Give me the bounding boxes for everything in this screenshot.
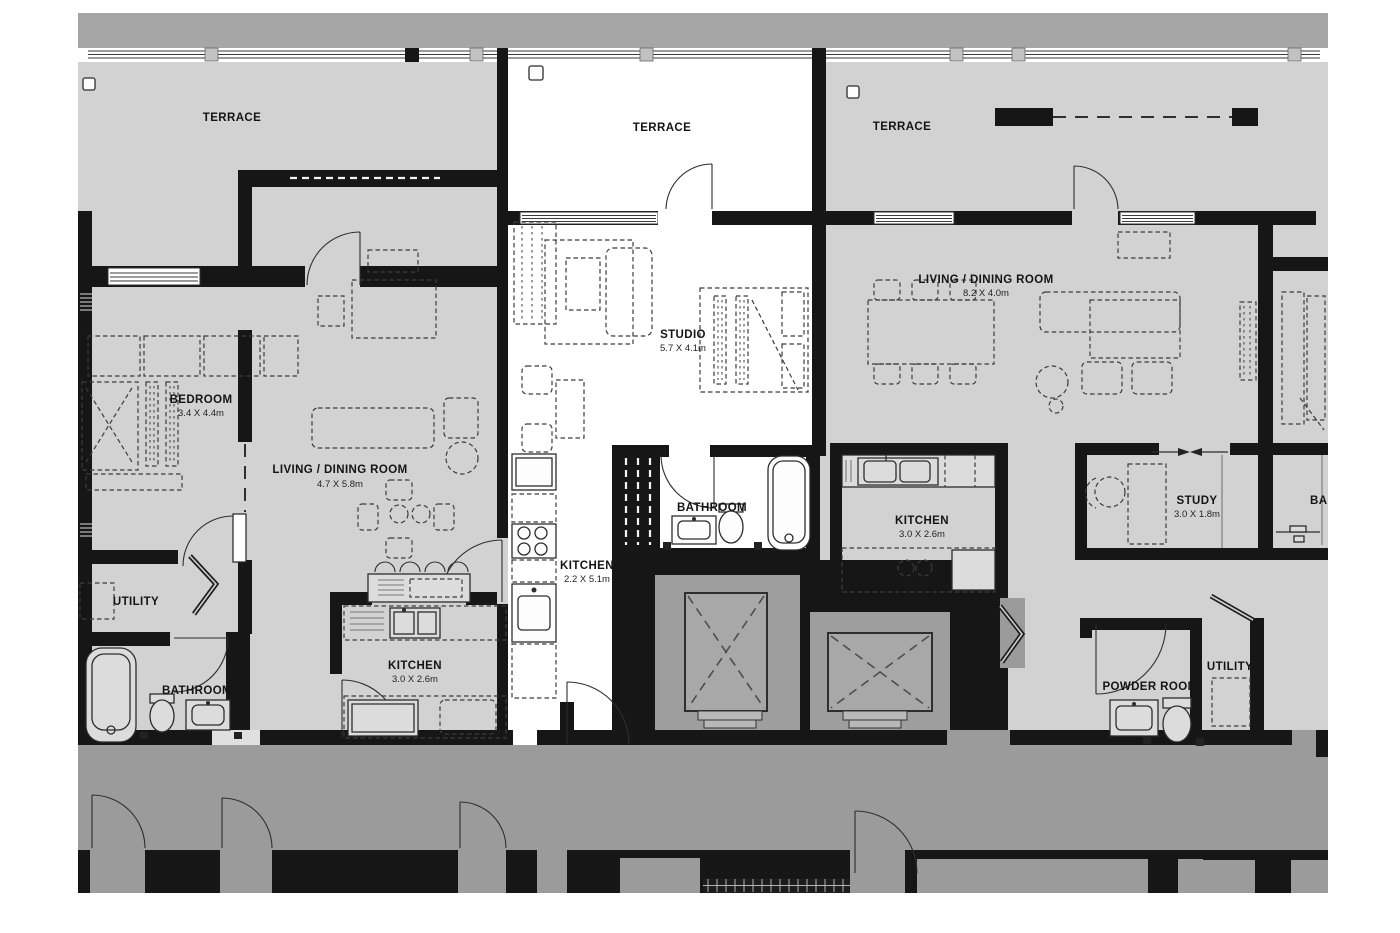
terrace-center-drain [529, 66, 543, 80]
dim-kitchen-left: 3.0 X 2.6m [392, 674, 438, 685]
window-right-terrace-1 [874, 212, 954, 224]
terrace-left-drain [83, 78, 95, 90]
stair-hatch [703, 878, 850, 893]
label-study: STUDY [1177, 495, 1218, 507]
floor-plan-page: TERRACE TERRACE TERRACE BEDROOM 3.4 X 4.… [0, 0, 1400, 933]
dim-living-right: 8.2 X 4.0m [963, 288, 1009, 299]
label-bathroom-left: BATHROOM [162, 685, 232, 697]
window-left-terrace [108, 268, 200, 285]
building-top-band [78, 13, 1328, 48]
label-bathroom-right-cropped: BA [1310, 495, 1327, 507]
label-kitchen-studio: KITCHEN [560, 560, 614, 572]
elevator-shaft-1 [655, 575, 800, 730]
dim-kitchen-studio: 2.2 X 5.1m [564, 574, 610, 585]
label-powder-room: POWDER ROOM [1102, 681, 1197, 693]
label-terrace-center: TERRACE [633, 122, 691, 134]
dim-study: 3.0 X 1.8m [1174, 509, 1220, 520]
floor-plan-drawing: TERRACE TERRACE TERRACE BEDROOM 3.4 X 4.… [0, 0, 1400, 933]
label-kitchen-left: KITCHEN [388, 660, 442, 672]
door-right-entry-folding [1000, 598, 1025, 668]
dim-living-left: 4.7 X 5.8m [317, 479, 363, 490]
elevator-shaft-2 [810, 612, 950, 730]
facade-glazing-strip [78, 48, 1328, 62]
terrace-right-drain [847, 86, 859, 98]
label-terrace-left: TERRACE [203, 112, 261, 124]
label-utility-left: UTILITY [113, 596, 159, 608]
label-utility-right: UTILITY [1207, 661, 1253, 673]
label-studio: STUDIO [660, 329, 706, 341]
dim-studio: 5.7 X 4.1m [660, 343, 706, 354]
label-bathroom-studio: BATHROOM [677, 502, 747, 514]
dim-bedroom: 3.4 X 4.4m [178, 408, 224, 419]
label-living-left: LIVING / DINING ROOM [272, 464, 407, 476]
label-terrace-right: TERRACE [873, 121, 931, 133]
dim-kitchen-right: 3.0 X 2.6m [899, 529, 945, 540]
label-bedroom: BEDROOM [170, 394, 233, 406]
window-right-terrace-2 [1120, 212, 1195, 224]
label-kitchen-right: KITCHEN [895, 515, 949, 527]
label-living-right: LIVING / DINING ROOM [918, 274, 1053, 286]
